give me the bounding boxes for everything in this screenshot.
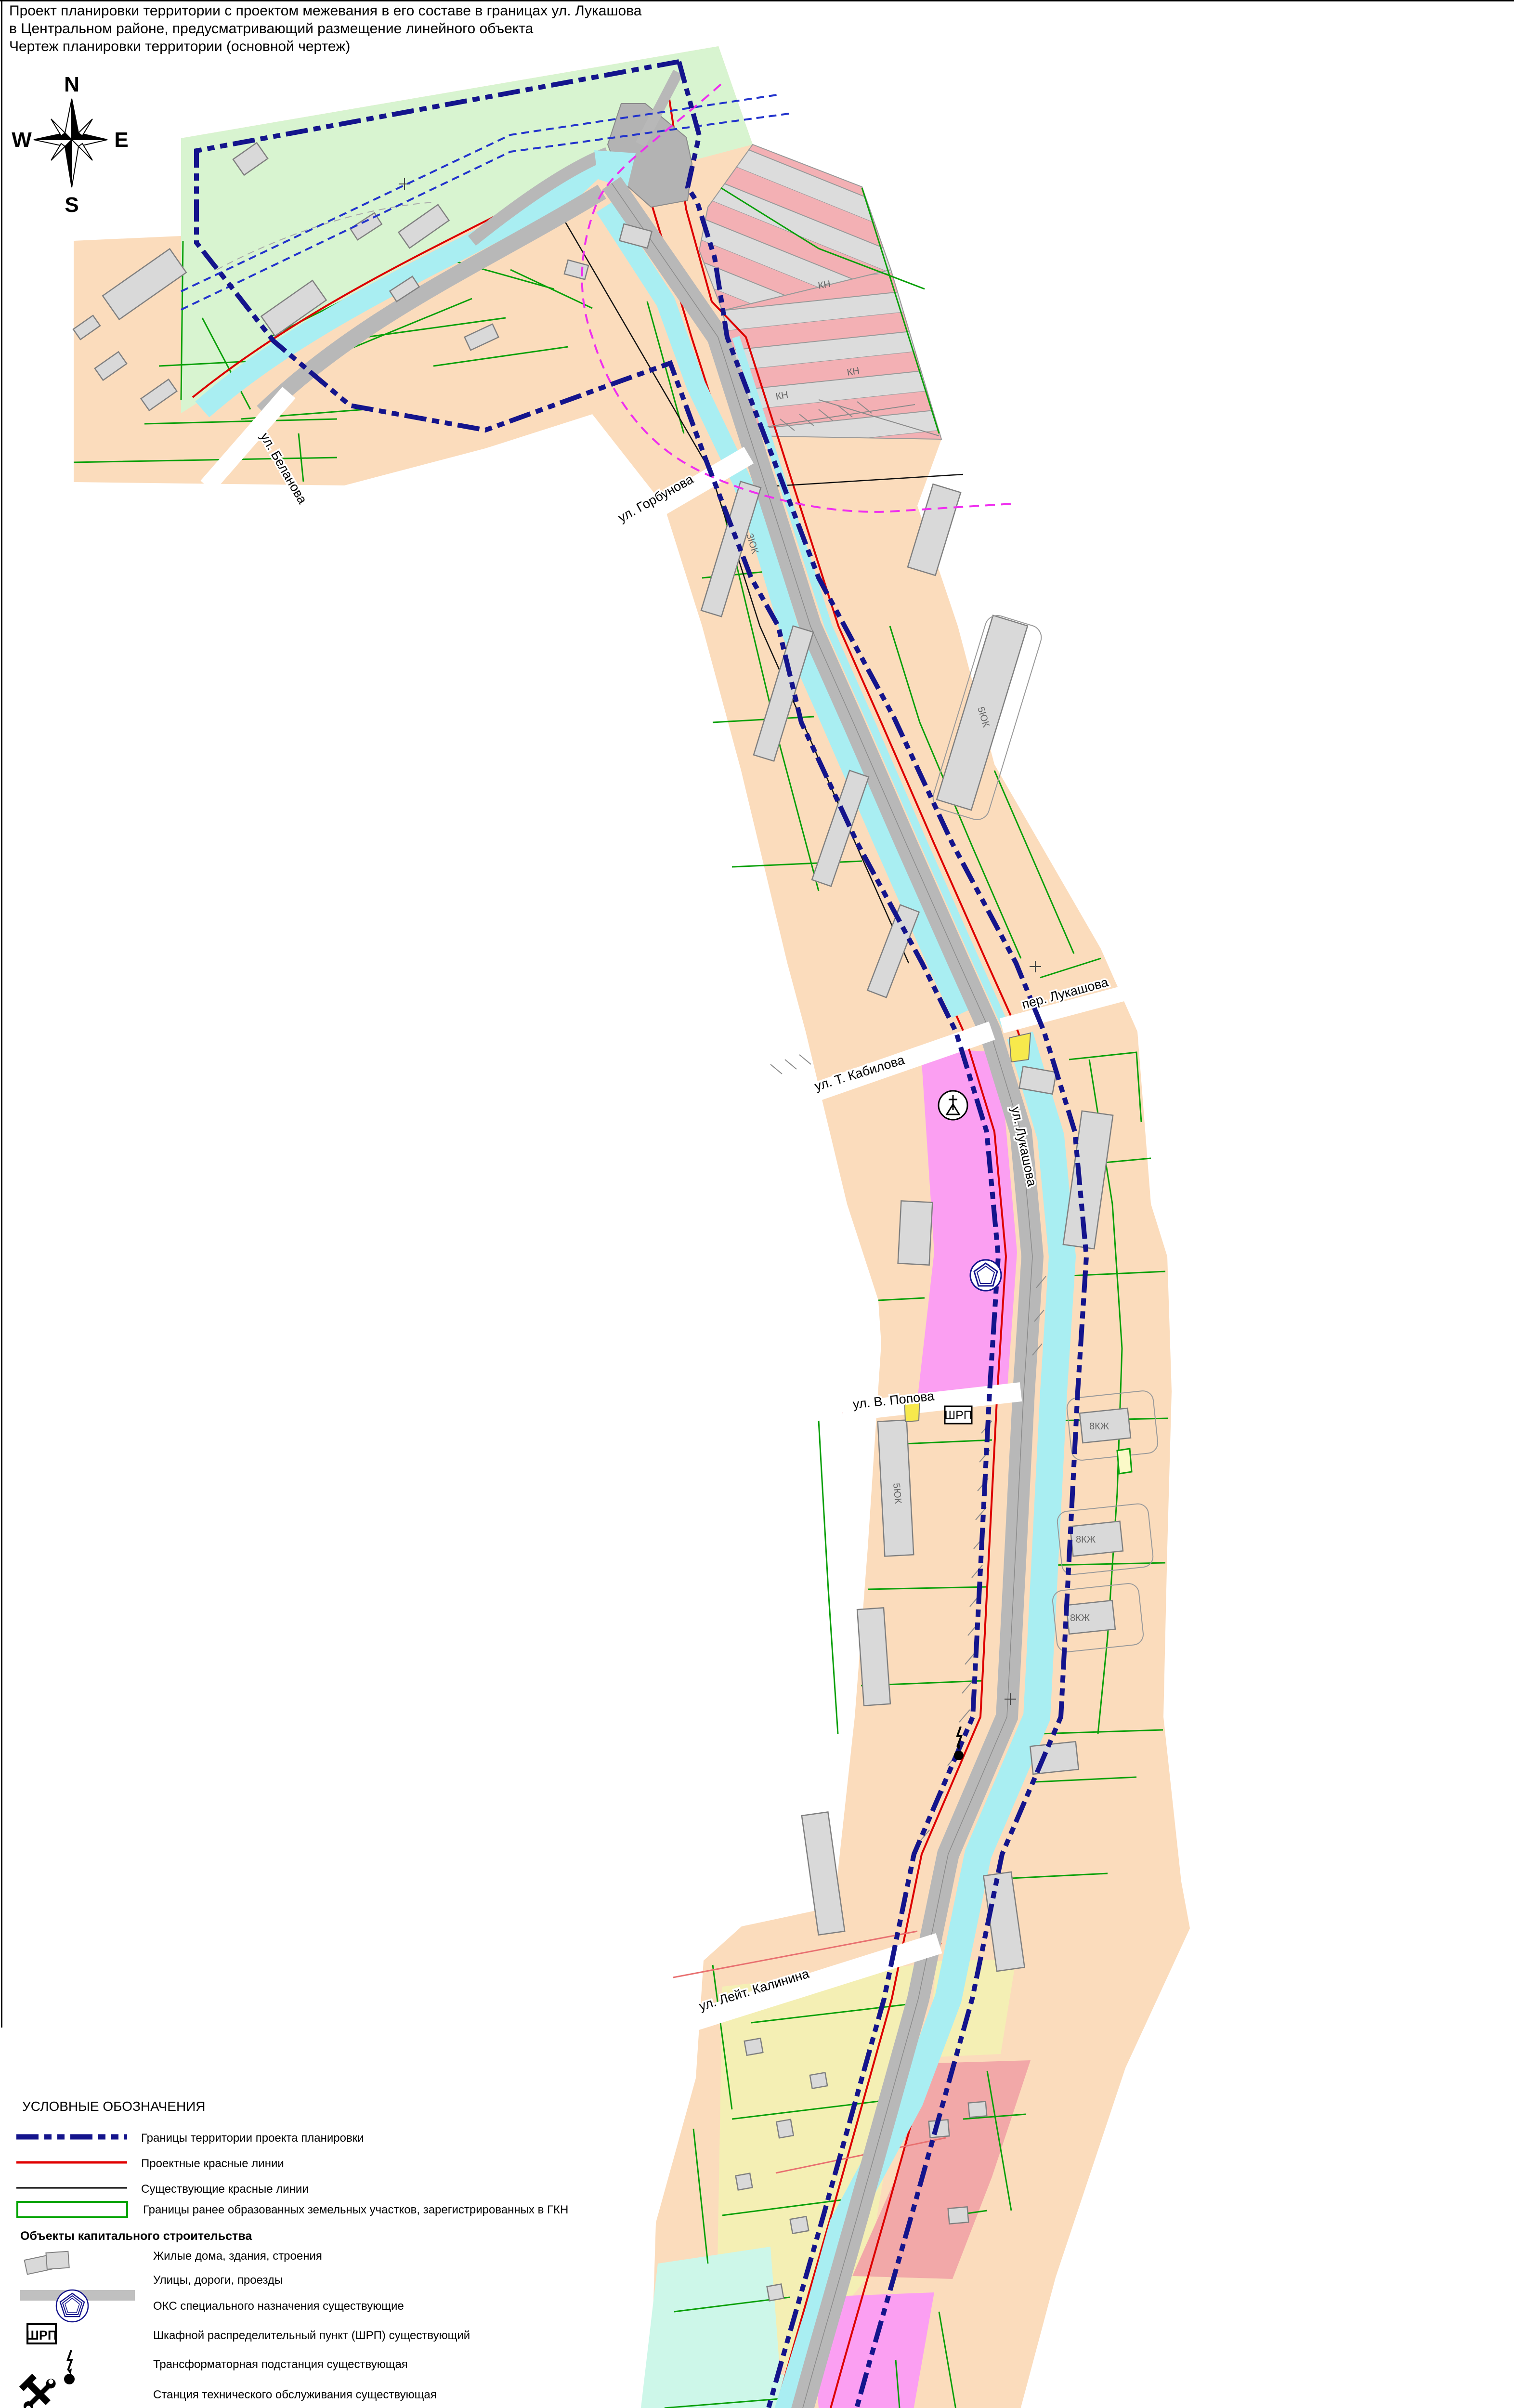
svg-text:W: W bbox=[12, 128, 32, 152]
svg-text:S: S bbox=[65, 193, 78, 217]
svg-text:КН: КН bbox=[846, 366, 861, 378]
svg-text:8КЖ: 8КЖ bbox=[1076, 1534, 1096, 1545]
svg-text:КН: КН bbox=[817, 279, 832, 291]
svg-text:ШРП: ШРП bbox=[944, 1409, 972, 1422]
svg-text:ШРП: ШРП bbox=[26, 2328, 57, 2343]
svg-text:КН: КН bbox=[775, 390, 789, 402]
svg-text:8КЖ: 8КЖ bbox=[1070, 1613, 1090, 1623]
svg-text:8КЖ: 8КЖ bbox=[1089, 1421, 1109, 1432]
svg-text:N: N bbox=[64, 73, 79, 96]
svg-text:5ЮК: 5ЮК bbox=[891, 1483, 903, 1505]
svg-text:E: E bbox=[114, 128, 128, 152]
